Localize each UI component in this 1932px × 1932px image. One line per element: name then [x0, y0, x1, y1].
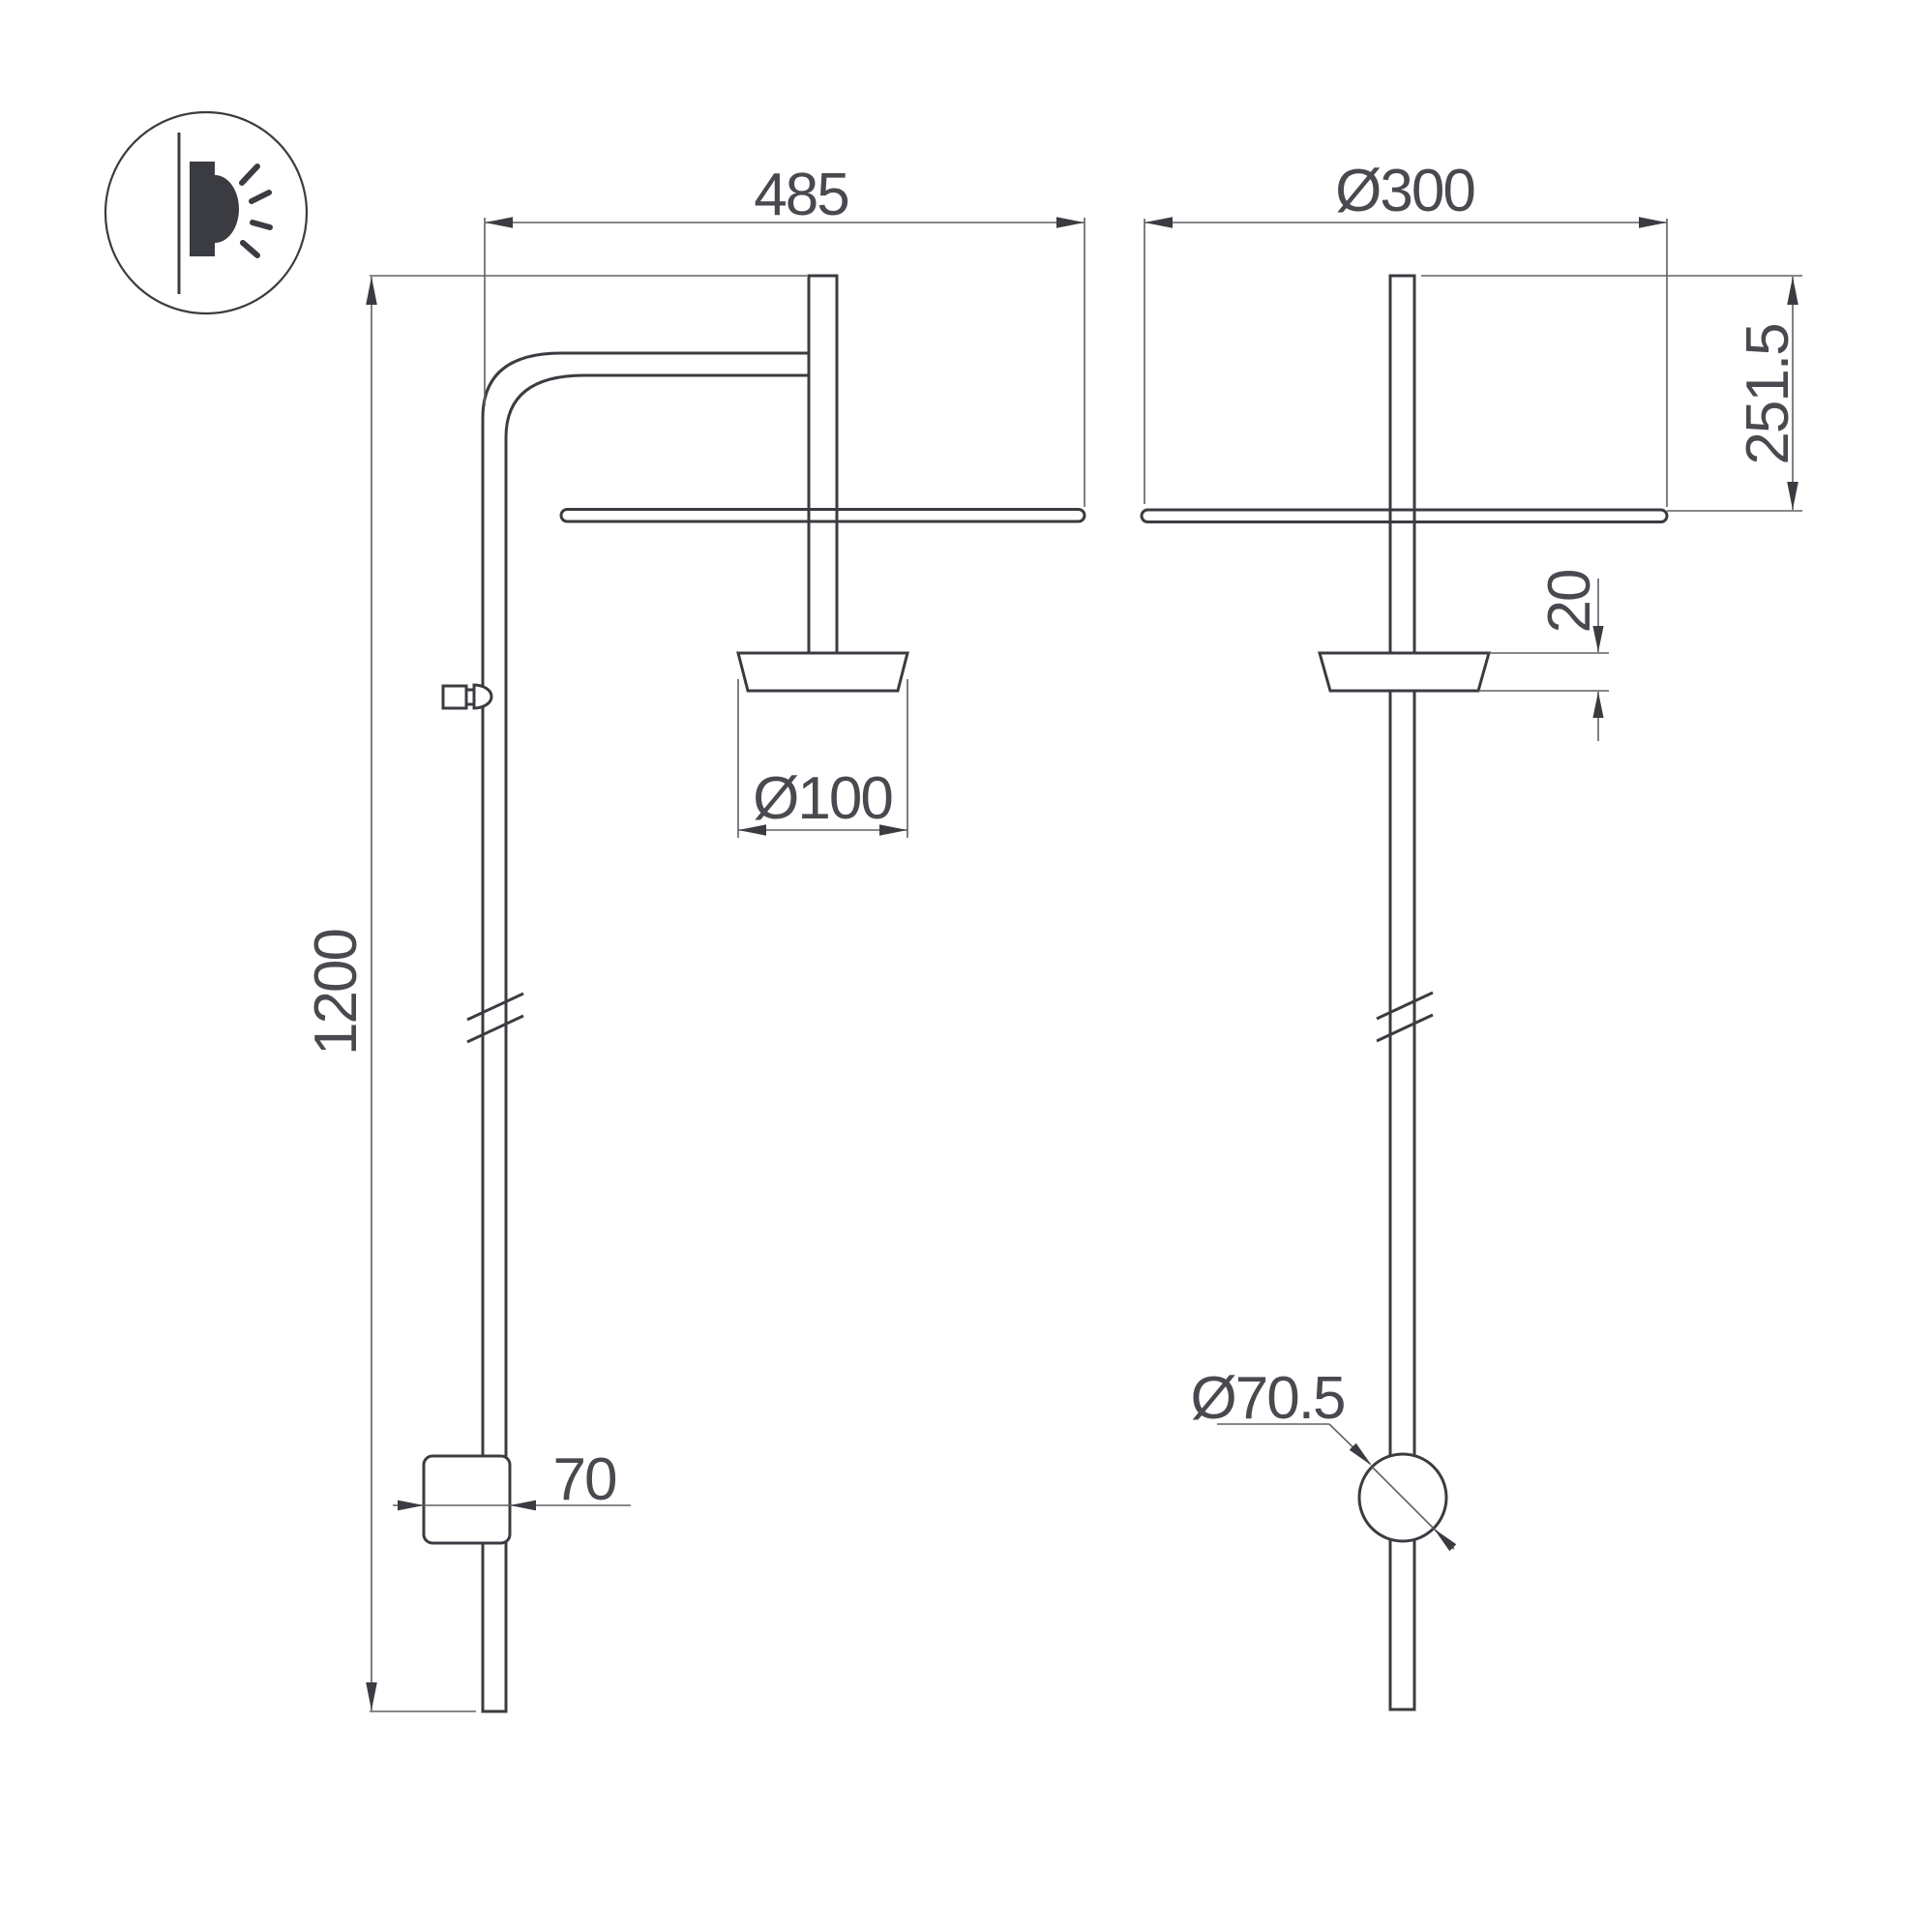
icon-lamp-dome: [215, 175, 239, 243]
wall-light-icon: [105, 112, 307, 313]
icon-lamp-body: [190, 162, 215, 256]
dim-300-label: Ø300: [1335, 158, 1474, 224]
lamp-stem: [809, 276, 837, 656]
front-view: [1142, 276, 1667, 1709]
luminaire-dimension-drawing: 485 1200 70 Ø100 Ø300: [0, 0, 1932, 1932]
dim-705-label: Ø70.5: [1191, 1365, 1345, 1432]
dim-100-label: Ø100: [753, 765, 892, 832]
led-head: [738, 653, 907, 691]
icon-light-ray: [253, 223, 270, 227]
shade-disc: [561, 510, 1085, 522]
dim-2515: 251.5: [1421, 276, 1802, 511]
dim-2515-label: 251.5: [1735, 324, 1801, 464]
break-mark: [1377, 1015, 1433, 1041]
icon-light-ray: [242, 166, 257, 183]
shade-disc-front: [1142, 510, 1667, 522]
drawing-canvas: 485 1200 70 Ø100 Ø300: [0, 0, 1932, 1932]
dim-300: Ø300: [1144, 158, 1667, 507]
toggle-knob: [474, 685, 491, 708]
dim-100: Ø100: [738, 679, 907, 838]
icon-light-ray: [243, 243, 257, 255]
dim-20-label: 20: [1536, 570, 1603, 633]
dim-485-label: 485: [754, 162, 847, 228]
toggle-body: [443, 686, 466, 708]
toggle-switch: [443, 685, 491, 708]
break-mark: [1377, 993, 1433, 1019]
break-mark: [467, 1016, 523, 1042]
break-mark: [467, 994, 523, 1020]
driver-box: [424, 1456, 510, 1543]
led-head-front: [1320, 653, 1489, 691]
dim-70-label: 70: [553, 1446, 616, 1513]
dim-485: 485: [485, 162, 1085, 507]
side-view: [424, 276, 1085, 1711]
dim-20: 20: [1478, 570, 1609, 741]
icon-light-ray: [252, 193, 269, 201]
dim-1200-label: 1200: [303, 930, 370, 1055]
